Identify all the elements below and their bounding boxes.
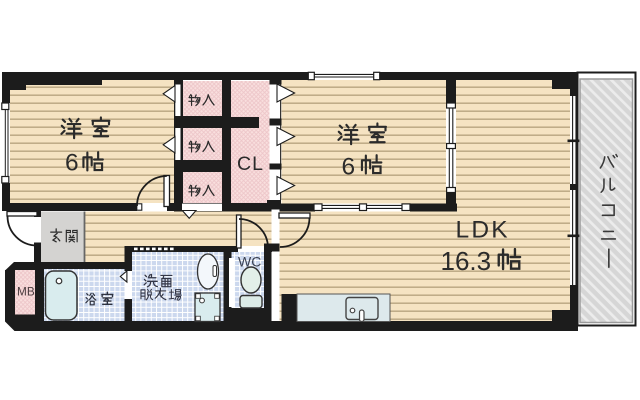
svg-text:MB: MB xyxy=(17,285,35,299)
svg-text:6: 6 xyxy=(65,150,79,177)
svg-text:WC: WC xyxy=(238,254,261,270)
svg-text:6: 6 xyxy=(342,154,356,181)
svg-text:16.3: 16.3 xyxy=(441,246,492,276)
svg-text:CL: CL xyxy=(237,153,264,175)
svg-text:LDK: LDK xyxy=(456,217,510,244)
